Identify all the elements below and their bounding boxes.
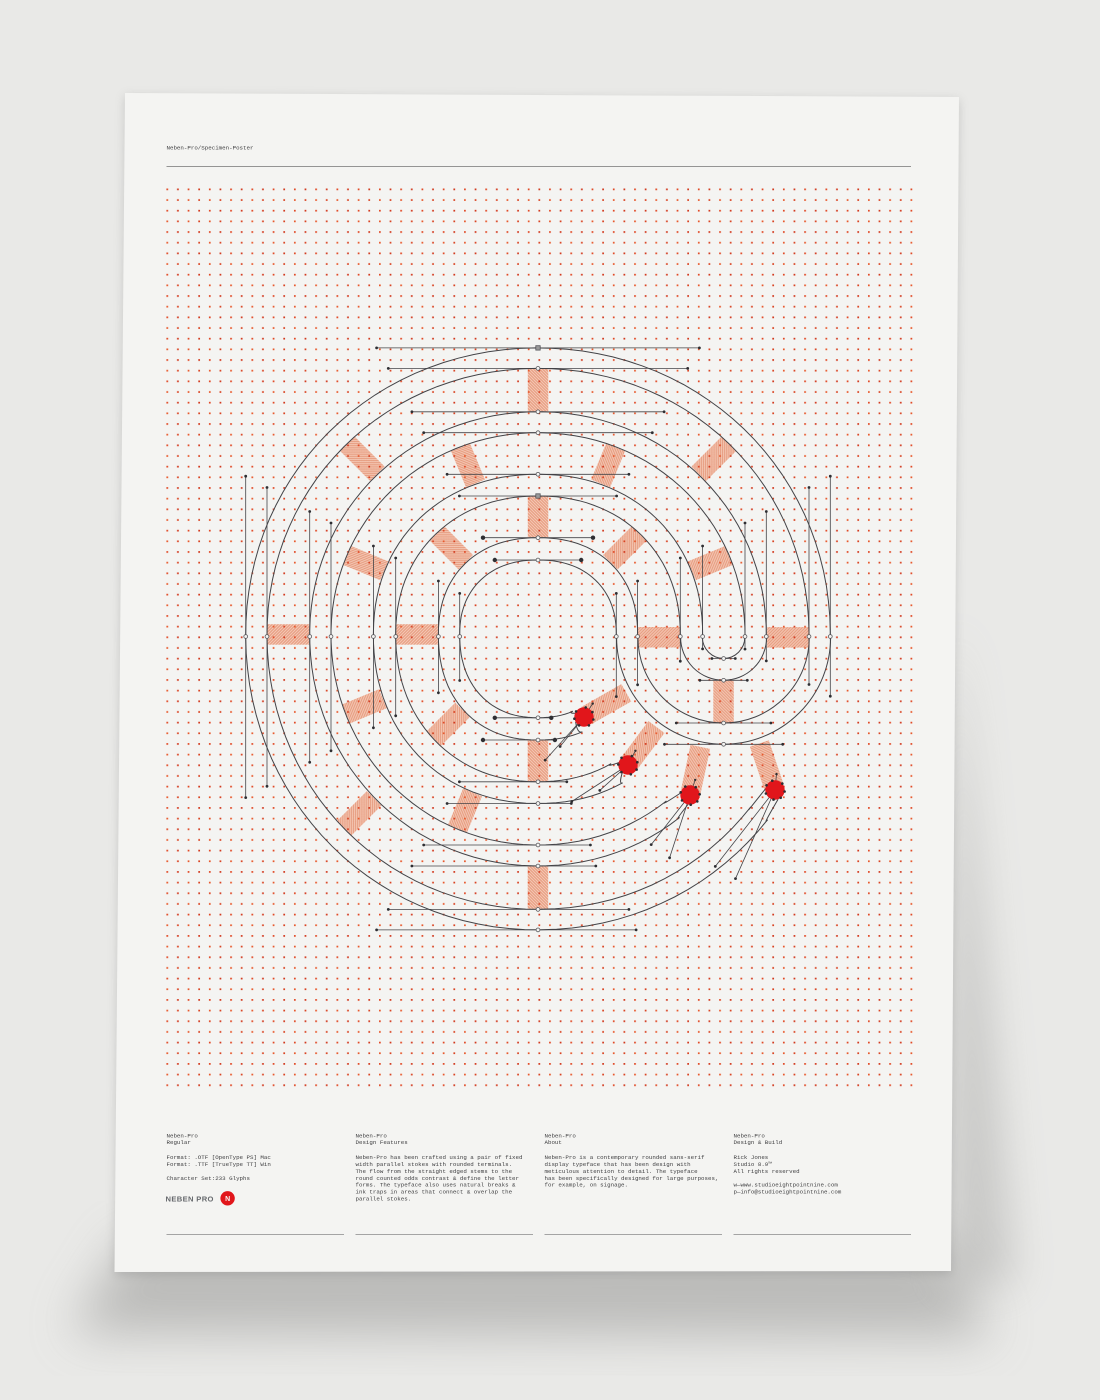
svg-text:p—info@studioeightpointnine.co: p—info@studioeightpointnine.com (734, 1189, 842, 1196)
svg-text:Design & Build: Design & Build (734, 1139, 783, 1146)
svg-text:for example, on signage.: for example, on signage. (545, 1182, 629, 1189)
svg-text:Neben-Pro/Specimen-Poster: Neben-Pro/Specimen-Poster (167, 144, 254, 151)
svg-text:N: N (225, 1196, 230, 1203)
svg-text:NEBEN PRO: NEBEN PRO (166, 1194, 214, 1203)
svg-text:All rights reserved: All rights reserved (734, 1168, 800, 1175)
svg-text:About: About (545, 1139, 562, 1146)
svg-text:Regular: Regular (167, 1139, 191, 1146)
svg-text:Format: .TTF [TrueType TT] Win: Format: .TTF [TrueType TT] Win (167, 1161, 271, 1168)
svg-text:Design Features: Design Features (356, 1139, 408, 1146)
svg-text:Character Set:233 Glyphs: Character Set:233 Glyphs (167, 1175, 251, 1182)
svg-text:parallel stokes.: parallel stokes. (356, 1196, 412, 1203)
